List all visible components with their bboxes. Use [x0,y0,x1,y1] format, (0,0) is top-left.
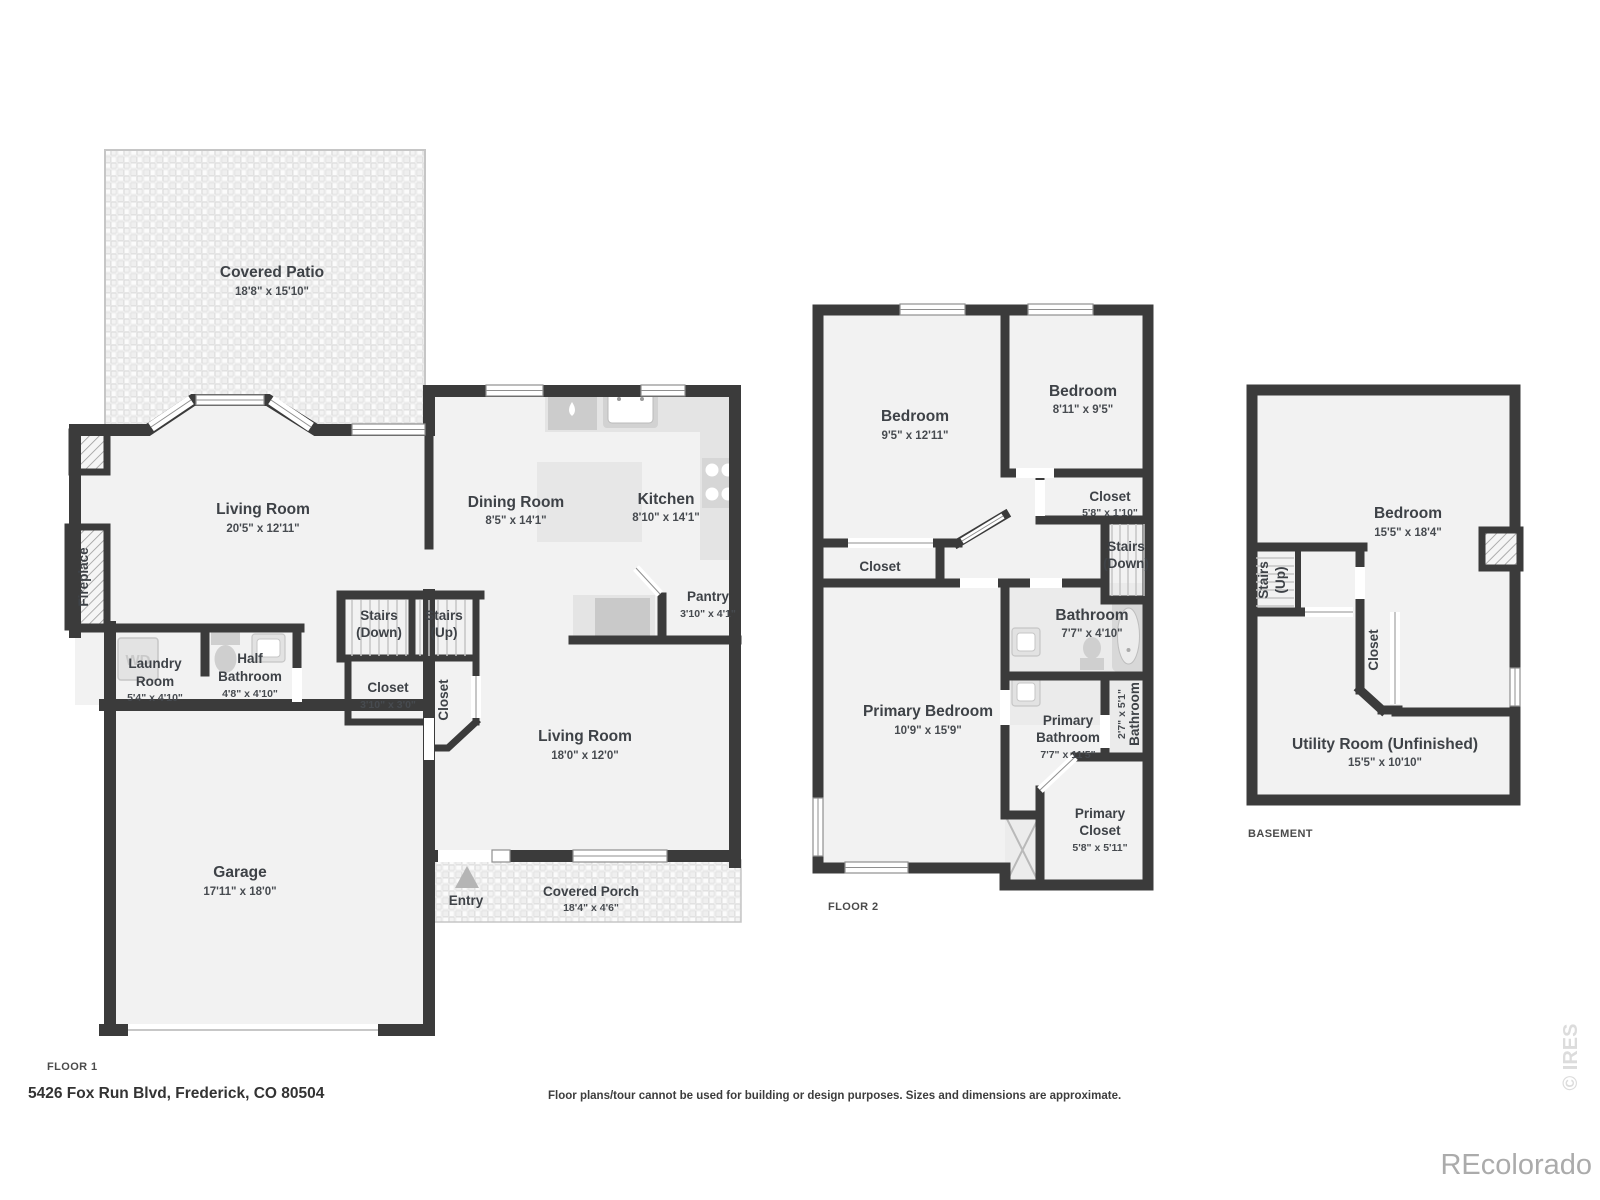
room-name: Closet [367,680,409,695]
room-dims: 2'7" x 5'1" [1116,689,1128,739]
room-name-line2: (Down) [1103,556,1149,571]
room-name: Kitchen [638,491,695,508]
room-name-line1: Primary [1075,806,1126,821]
room-dims: 18'4" x 4'6" [563,902,619,914]
room-name: Covered Patio [220,264,324,281]
room-name: Bathroom [1055,607,1128,624]
floor2-plan: Bedroom 9'5" x 12'11" Bedroom 8'11" x 9'… [813,304,1149,913]
disclaimer-text: Floor plans/tour cannot be used for buil… [548,1090,1121,1102]
room-name-line2: Closet [1079,823,1121,838]
bath-door-opening [292,668,302,702]
floor1-label: FLOOR 1 [47,1061,97,1073]
room-label-closet: Closet [1366,629,1381,671]
recolorado-watermark: REcolorado [1440,1149,1592,1181]
room-dims: 3'10" x 4'1" [680,608,736,620]
room-label-kitchen: Kitchen 8'10" x 14'1" [632,491,700,524]
door-opening [1100,715,1110,748]
room-dims: 8'10" x 14'1" [632,512,700,524]
room-name: Bedroom [881,408,949,425]
room-name-line1: Stairs [425,608,463,623]
floorplan-page: WD [0,0,1600,1200]
room-name: Dining Room [468,494,564,511]
room-dims: 15'5" x 10'10" [1348,757,1422,769]
entry-door-opening [438,850,492,862]
floorplan-image: WD [0,0,1600,1200]
room-label-primary-closet: Primary Closet 5'8" x 5'11" [1072,806,1127,854]
room-name: Primary Bedroom [863,703,993,720]
room-label-primary-bathroom: Primary Bathroom 7'7" x 11'5" [1036,713,1100,761]
room-name-line1: Stairs [1107,539,1145,554]
door-opening [1016,468,1054,478]
floor2-label: FLOOR 2 [828,901,878,913]
room-label-entry: Entry [449,893,484,908]
room-dims: 3'10" x 3'0" [360,699,416,711]
room-dims: 7'7" x 11'5" [1040,749,1095,761]
room-name-line2: Bathroom [218,669,282,684]
room-dims: 5'8" x 1'10" [1082,507,1138,519]
room-dims: 20'5" x 12'11" [226,523,299,535]
room-name-line2: Room [136,674,174,689]
room-name: Closet [1089,489,1131,504]
room-label-bathroom: Bathroom 7'7" x 4'10" [1055,607,1128,640]
room-dims: 9'5" x 12'11" [882,430,949,442]
room-name: Covered Porch [543,884,639,899]
room-dims: 18'0" x 12'0" [551,750,619,762]
room-dims: 7'7" x 4'10" [1061,628,1122,640]
window-well-hatch [1482,530,1520,568]
room-dims: 8'5" x 14'1" [485,515,546,527]
door-opening [960,578,998,588]
room-dims: 8'11" x 9'5" [1053,404,1114,416]
room-name: Living Room [216,501,310,518]
basement-label: BASEMENT [1248,828,1313,840]
room-name-line2: Bathroom [1036,730,1100,745]
room-dims: 17'11" x 18'0" [203,886,276,898]
closet-door-opening [1035,480,1045,516]
room-name: Bedroom [1374,505,1442,522]
room-name-line1: Stairs [360,608,398,623]
room-name-line1: Half [237,651,263,666]
room-dims: 5'4" x 4'10" [127,692,183,704]
door-opening [1030,578,1062,588]
room-dims: 10'9" x 15'9" [894,725,962,737]
door-opening [1355,567,1365,599]
room-name-line1: Laundry [128,656,182,671]
door-opening [424,718,434,760]
room-name-line2: (Up) [431,625,458,640]
toilet-icon [211,632,240,645]
room-name: Living Room [538,728,632,745]
room-dims: 15'5" x 18'4" [1374,527,1442,539]
room-dims: 5'8" x 5'11" [1072,842,1127,854]
room-label-closet-left: Closet [859,559,901,574]
room-name-line2: (Up) [1273,567,1288,594]
room-dims: 4'8" x 4'10" [222,688,278,700]
room-label-bathroom-small: Bathroom 2'7" x 5'1" [1116,682,1142,746]
property-address: 5426 Fox Run Blvd, Frederick, CO 80504 [28,1085,325,1102]
room-label-bedroom-right: Bedroom 8'11" x 9'5" [1049,383,1117,416]
toilet-icon [1080,658,1104,670]
room-label-closet-side: Closet [436,679,451,721]
door-opening [1000,690,1010,725]
ires-copyright: © IRES [1560,1024,1582,1091]
room-name: Garage [213,864,267,881]
range-icon [595,598,650,637]
room-name-line1: Primary [1043,713,1094,728]
room-name: Pantry [687,589,730,604]
room-name: Bathroom [1127,682,1142,746]
room-dims: 18'8" x 15'10" [235,286,309,298]
room-name-line1: Stairs [1256,561,1271,599]
room-name: Bedroom [1049,383,1117,400]
floor1-plan: WD [47,150,741,1073]
room-label-fireplace: Fireplace [76,547,91,607]
basement-plan: Bedroom 15'5" x 18'4" Stairs (Up) Closet… [1248,390,1520,840]
room-name: Utility Room (Unfinished) [1292,736,1478,753]
room-name-line2: (Down) [356,625,402,640]
